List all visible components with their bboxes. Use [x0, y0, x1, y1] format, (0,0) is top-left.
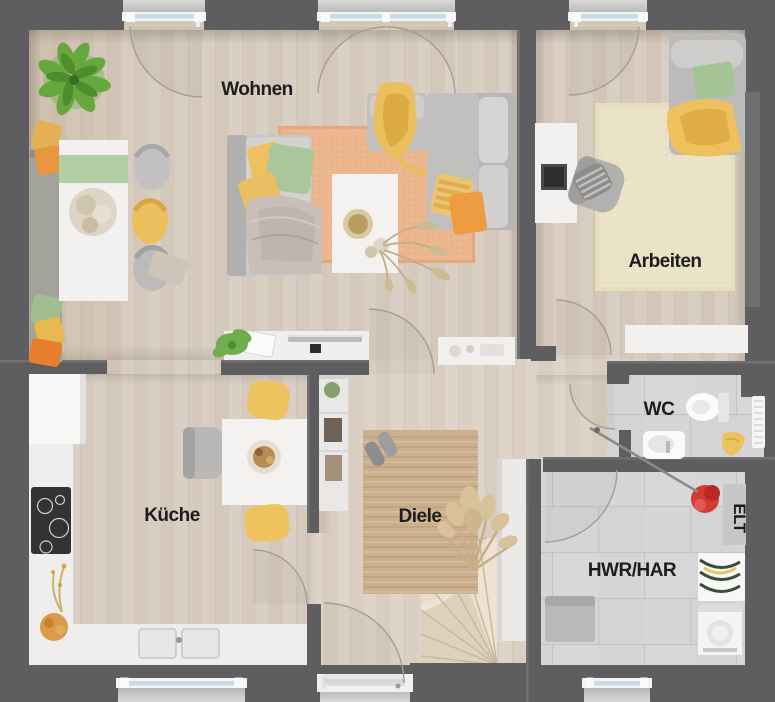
- svg-text:ELT: ELT: [730, 503, 749, 533]
- svg-text:Küche: Küche: [144, 505, 200, 526]
- svg-text:WC: WC: [644, 399, 675, 420]
- svg-text:Arbeiten: Arbeiten: [628, 251, 701, 272]
- svg-text:Diele: Diele: [399, 506, 442, 527]
- svg-text:HWR/HAR: HWR/HAR: [588, 560, 677, 581]
- svg-text:Wohnen: Wohnen: [221, 79, 293, 100]
